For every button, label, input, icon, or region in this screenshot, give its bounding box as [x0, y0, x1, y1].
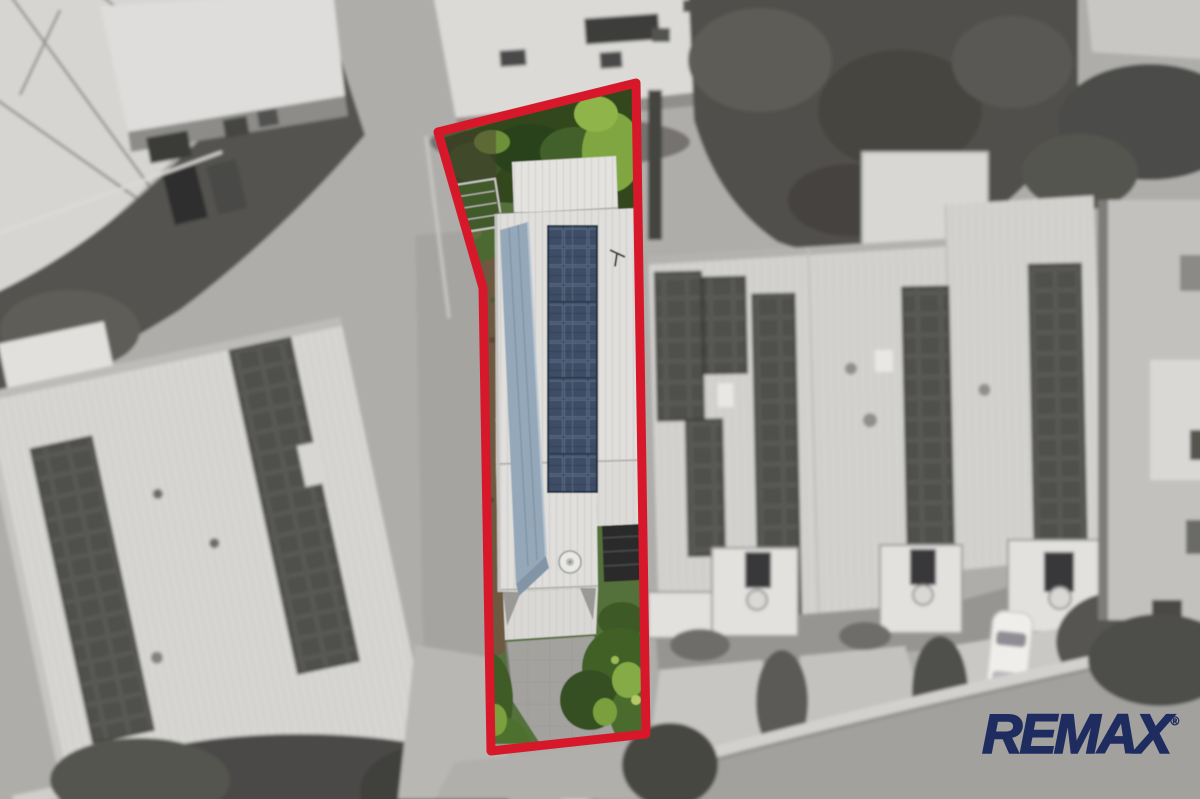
remax-logo: REMAX® [982, 706, 1179, 762]
topright-corner-roof [1085, 0, 1200, 60]
far-right-building [1098, 200, 1200, 640]
remax-wordmark: REMAX [982, 702, 1169, 765]
skylight [875, 350, 893, 372]
carport [602, 524, 641, 582]
shed-roof [512, 156, 618, 216]
porch-vent [1049, 587, 1071, 609]
skylight [717, 383, 733, 407]
solar-array [548, 226, 597, 492]
porch-vent [747, 590, 767, 610]
whirlybird-vent [559, 551, 581, 573]
fence-shadow-strip [648, 90, 662, 240]
aerial-photo: REMAX® [0, 0, 1200, 799]
aerial-photo-svg [0, 0, 1200, 799]
roof-solar-strip [584, 13, 660, 44]
registered-mark: ® [1170, 714, 1179, 728]
porch-vent [913, 585, 933, 605]
